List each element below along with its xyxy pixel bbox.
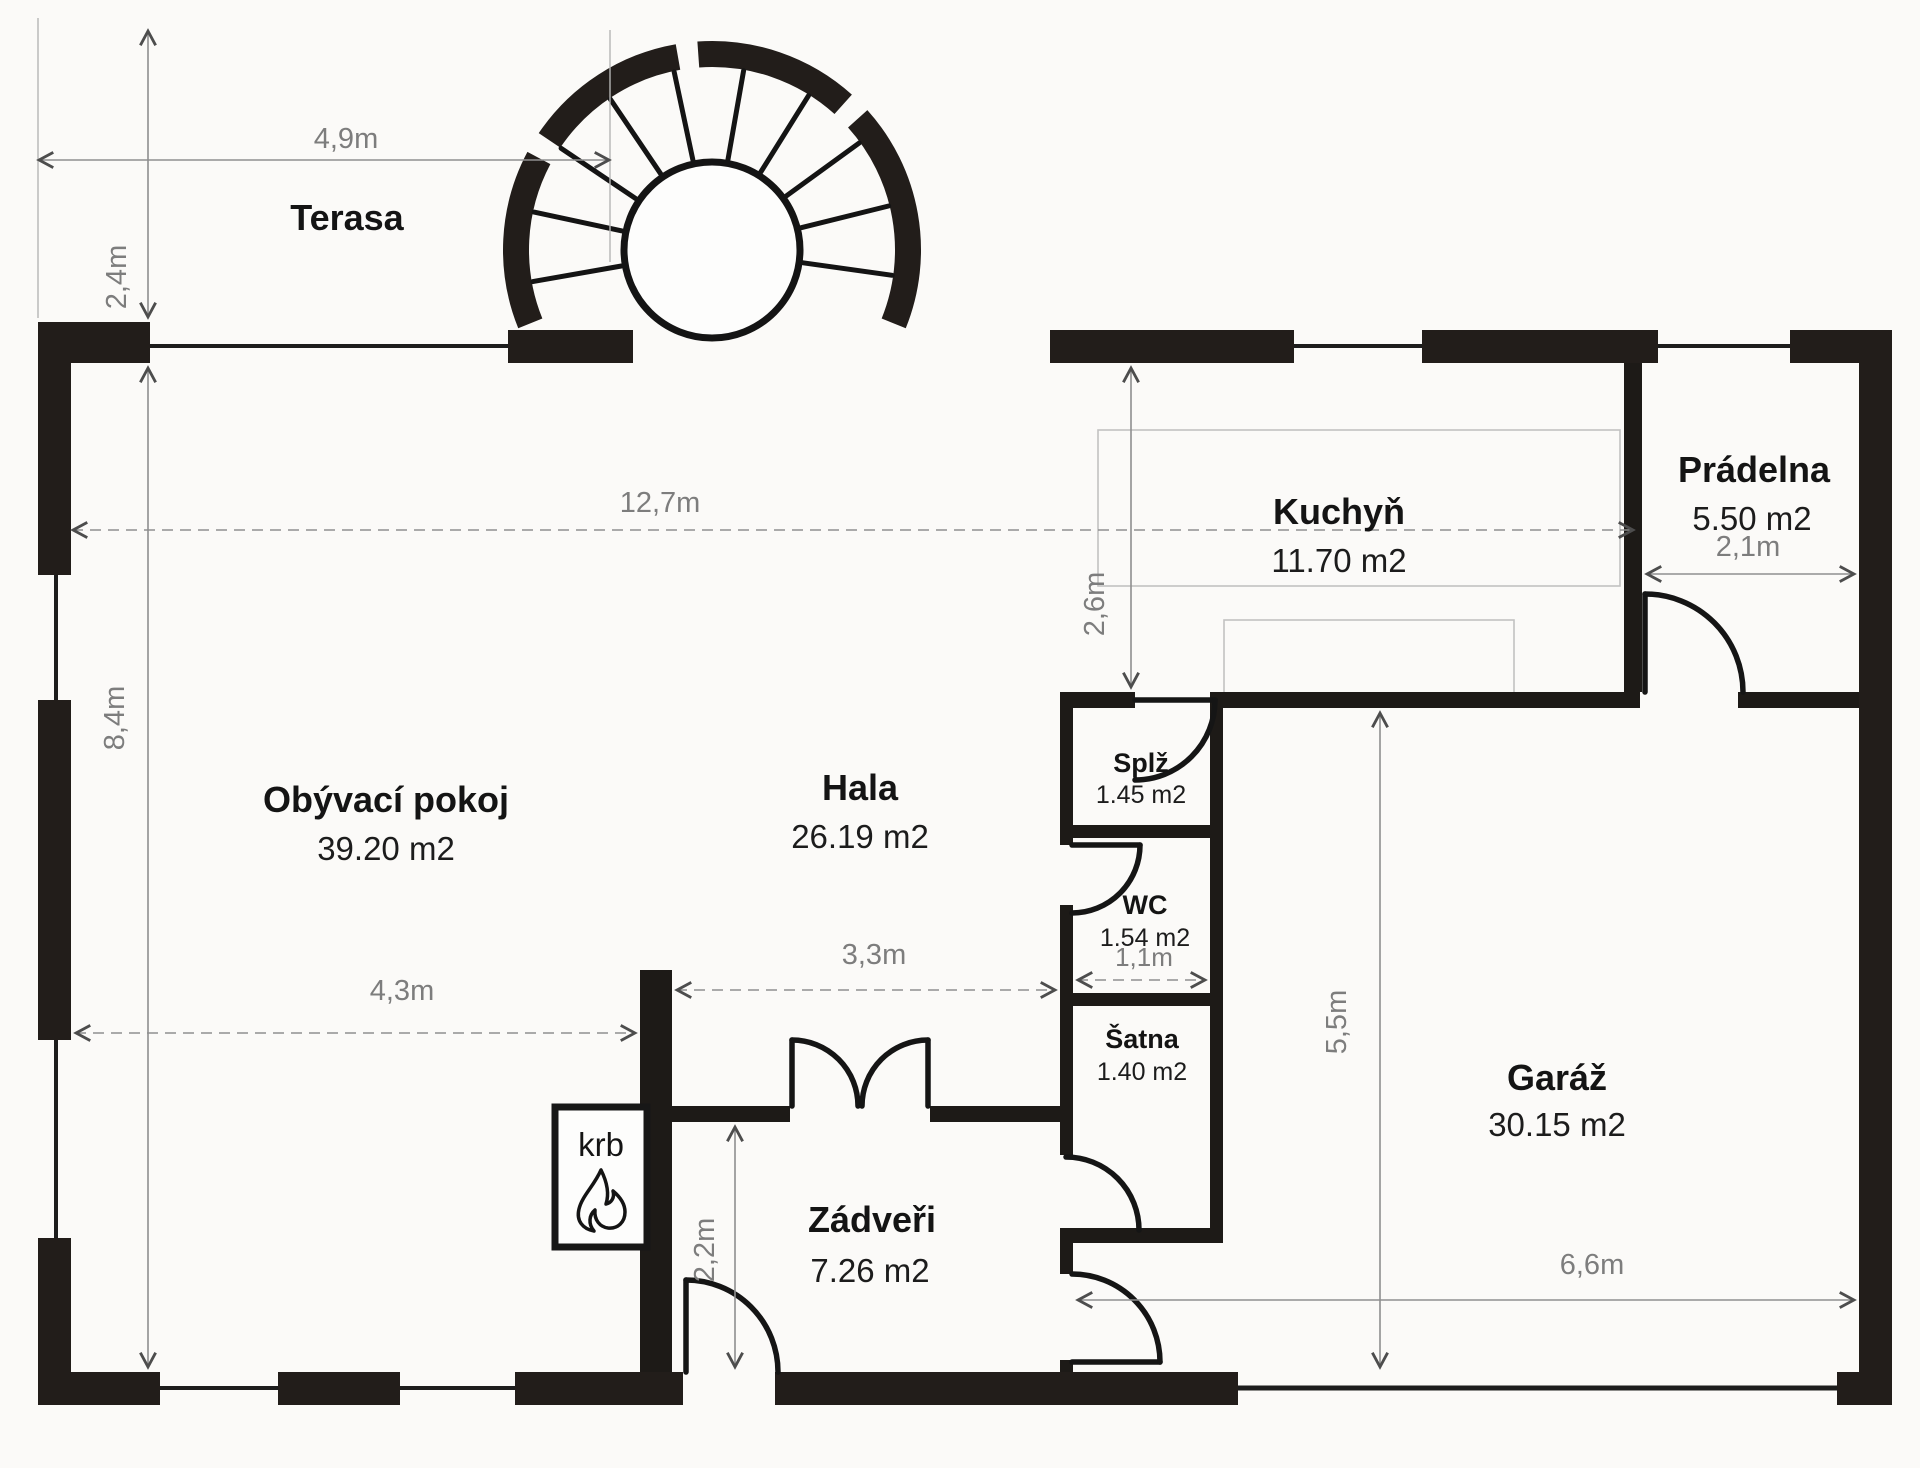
- room-label-wc: WC: [1123, 890, 1168, 920]
- spiral-staircase: [516, 54, 908, 338]
- dim-label-zadveri-height: 2,2m: [689, 1218, 721, 1282]
- room-area-splz: 1.45 m2: [1096, 781, 1186, 809]
- dim-label-terrace-depth: 2,4m: [101, 245, 133, 309]
- dim-label-garage-width: 6,6m: [1560, 1249, 1624, 1281]
- room-area-satna: 1.40 m2: [1097, 1058, 1187, 1086]
- room-label-obyvaci: Obývací pokoj: [263, 779, 509, 820]
- room-label-garaz: Garáž: [1507, 1057, 1607, 1098]
- hala-double-door: [792, 1040, 928, 1106]
- floor-plan-page: krb 4,9m 2,4m 12,7m 8,4m 2,6m 2,1m 3,3m …: [0, 0, 1920, 1468]
- dim-label-living-width: 4,3m: [370, 975, 434, 1007]
- dim-label-main-width: 12,7m: [620, 487, 701, 519]
- stair-outer-arc-4: [858, 119, 908, 324]
- stair-center-circle: [624, 162, 800, 338]
- room-label-terasa: Terasa: [290, 197, 404, 238]
- room-area-hala: 26.19 m2: [791, 818, 929, 855]
- dim-label-terrace-width: 4,9m: [314, 123, 378, 155]
- corridor-door: [1072, 1274, 1160, 1362]
- room-label-satna: Šatna: [1105, 1023, 1180, 1054]
- windows: [56, 346, 1837, 1388]
- kitchen-pradelna-wall: [1624, 363, 1642, 692]
- dim-label-corridor-height: 5,5m: [1321, 990, 1353, 1054]
- room-area-zadveri: 7.26 m2: [810, 1252, 929, 1289]
- room-area-wc: 1.54 m2: [1100, 924, 1190, 952]
- pradelna-door: [1645, 594, 1743, 692]
- room-area-kuchyn: 11.70 m2: [1271, 542, 1406, 579]
- wc-satna-wall: [1060, 993, 1223, 1006]
- room-label-pradelna: Prádelna: [1678, 449, 1831, 490]
- room-label-splz: Splž: [1113, 748, 1169, 778]
- outer-walls: [38, 322, 1892, 1405]
- column-left-wall-2: [1060, 905, 1073, 1155]
- stair-outer-arc-3: [698, 54, 843, 104]
- room-area-obyvaci: 39.20 m2: [317, 830, 455, 867]
- room-area-pradelna: 5.50 m2: [1692, 500, 1811, 537]
- corridor-wall-c: [1738, 692, 1859, 708]
- column-right-wall: [1210, 692, 1223, 1243]
- room-area-garaz: 30.15 m2: [1488, 1106, 1626, 1143]
- fireplace: krb: [555, 1107, 647, 1247]
- zadveri-top-wall-a: [672, 1106, 790, 1122]
- dim-label-kitchen-depth: 2,6m: [1079, 572, 1111, 636]
- fireplace-label: krb: [578, 1126, 624, 1163]
- splz-wc-wall: [1060, 825, 1223, 838]
- corridor-wall-b: [1215, 692, 1640, 708]
- room-label-kuchyn: Kuchyň: [1273, 491, 1405, 532]
- column-left-wall-1: [1060, 692, 1073, 845]
- zadveri-top-wall-b: [930, 1106, 1060, 1122]
- dim-label-hala-opening: 3,3m: [842, 939, 906, 971]
- stair-outer-arc-2: [550, 57, 679, 140]
- floor-plan-canvas: krb 4,9m 2,4m 12,7m 8,4m 2,6m 2,1m 3,3m …: [0, 0, 1920, 1468]
- room-label-hala: Hala: [822, 767, 899, 808]
- room-label-zadveri: Zádveři: [808, 1199, 936, 1240]
- satna-door: [1066, 1157, 1139, 1230]
- dim-label-main-height: 8,4m: [99, 686, 131, 750]
- stair-outer-arc-1: [516, 158, 539, 323]
- entrance-door: [686, 1280, 778, 1372]
